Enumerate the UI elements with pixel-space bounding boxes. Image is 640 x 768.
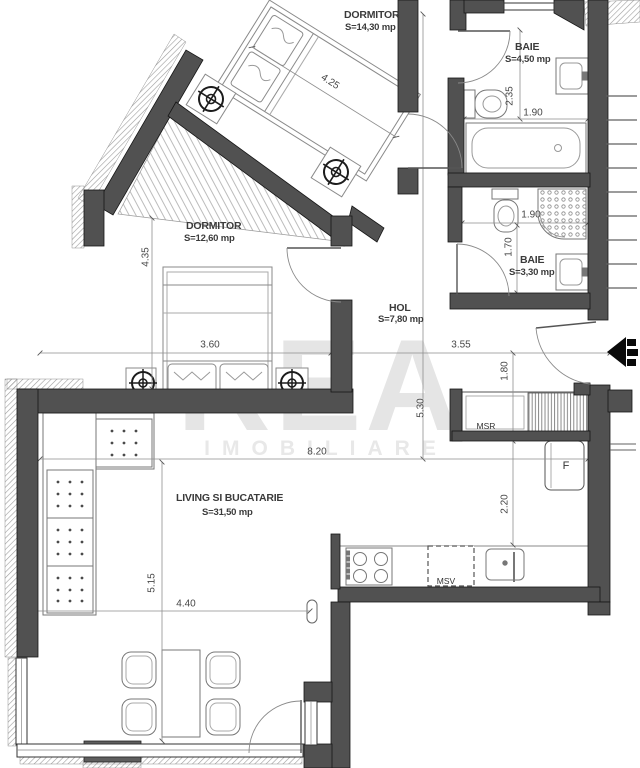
room-area-baie2: S=3,30 mp xyxy=(509,267,554,278)
dim-living-bottom: 4.40 xyxy=(176,599,195,610)
floor-plan: REA IMOBILIARE xyxy=(0,0,640,768)
room-area-hol: S=7,80 mp xyxy=(378,314,423,325)
room-label-living: LIVING SI BUCATARIE xyxy=(176,492,283,504)
shower-icon xyxy=(538,189,586,239)
label-fridge: F xyxy=(563,460,570,472)
room-label-dormitor2: DORMITOR xyxy=(186,220,241,232)
room-area-living: S=31,50 mp xyxy=(202,507,253,518)
kitchen-sink-icon xyxy=(486,549,524,582)
dining-table-icon xyxy=(162,650,200,737)
bathtub-icon xyxy=(466,123,586,173)
toilet-icon xyxy=(492,189,518,232)
dim-hol-length: 5.30 xyxy=(416,398,427,417)
toilet-icon xyxy=(464,90,507,118)
dim-baie1-depth: 2.35 xyxy=(505,86,516,105)
dim-dormitor2-width: 3.60 xyxy=(200,340,219,351)
entrance-arrow-icon xyxy=(607,337,638,367)
stove-icon xyxy=(346,548,392,585)
dim-baie2-width: 1.90 xyxy=(521,210,540,221)
bath-sink-icon xyxy=(556,254,589,290)
dim-dormitor2-height: 4.35 xyxy=(141,247,152,266)
bed-icon-dormitor2 xyxy=(163,267,272,400)
room-label-hol: HOL xyxy=(389,302,411,314)
dim-baie1-width: 1.90 xyxy=(523,108,542,119)
room-label-baie2: BAIE xyxy=(520,254,544,266)
bath-sink-icon xyxy=(556,58,589,94)
dim-baie2-depth: 1.70 xyxy=(504,237,515,256)
room-area-baie1: S=4,50 mp xyxy=(505,54,550,65)
dim-hol-width: 3.55 xyxy=(451,340,470,351)
dim-living-width: 8.20 xyxy=(307,447,326,458)
room-area-dormitor1: S=14,30 mp xyxy=(345,22,396,33)
dim-entry-niche: 1.80 xyxy=(500,361,511,380)
dim-kitchen-depth: 2.20 xyxy=(500,494,511,513)
floor-plan-drawing xyxy=(0,0,640,768)
label-msv: MSV xyxy=(437,576,455,586)
door-handle-icon xyxy=(307,600,317,623)
room-label-dormitor1: DORMITOR xyxy=(344,9,399,21)
label-msr: MSR xyxy=(477,421,496,431)
dim-living-height: 5.15 xyxy=(147,573,158,592)
room-area-dormitor2: S=12,60 mp xyxy=(184,233,235,244)
room-label-baie1: BAIE xyxy=(515,41,539,53)
